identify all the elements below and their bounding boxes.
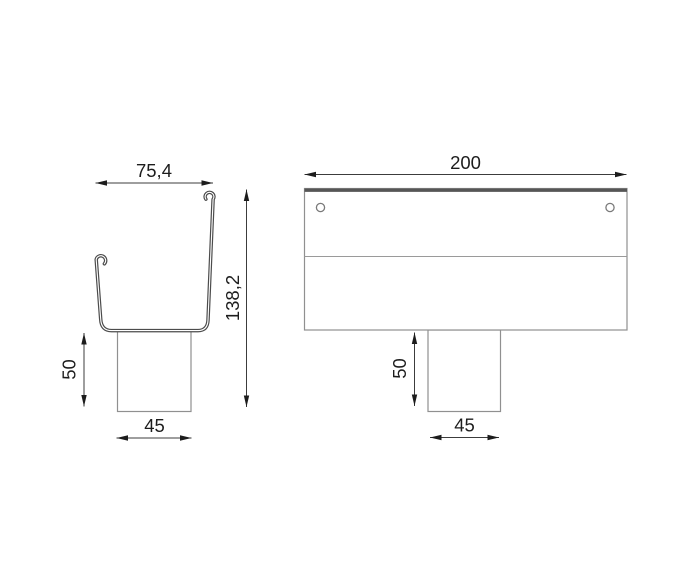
dim-side-top-width: 75,4 [96, 160, 214, 186]
outlet-pipe-front [428, 330, 501, 412]
dim-arrow-left-icon [96, 180, 108, 185]
technical-drawing: 75,4 138,2 50 45 [0, 0, 700, 572]
dim-arrow-down-icon [244, 396, 249, 408]
gutter-profile-outline [96, 192, 214, 330]
dim-arrow-left-icon [305, 172, 317, 177]
dim-arrow-down-icon [412, 395, 417, 407]
dim-side-outlet-width: 45 [117, 415, 192, 441]
dim-front-outlet-width: 45 [430, 415, 499, 441]
dim-arrow-up-icon [81, 333, 86, 345]
dim-label: 45 [454, 415, 475, 436]
dim-arrow-down-icon [81, 395, 86, 407]
mounting-hole-right [606, 203, 614, 211]
dim-arrow-right-icon [488, 435, 500, 440]
drawing-page: 75,4 138,2 50 45 [0, 0, 700, 572]
dim-arrow-up-icon [244, 190, 249, 202]
mounting-hole-left [316, 203, 324, 211]
gutter-profile-core [96, 192, 214, 330]
back-panel [305, 189, 628, 331]
dim-arrow-up-icon [412, 333, 417, 345]
dim-label: 45 [144, 415, 165, 436]
dim-label: 138,2 [222, 275, 243, 321]
dim-front-width: 200 [305, 152, 627, 177]
dim-label: 50 [389, 358, 410, 379]
dim-arrow-right-icon [180, 435, 192, 440]
side-profile-view: 75,4 138,2 50 45 [59, 160, 250, 441]
dim-front-outlet-height: 50 [389, 333, 417, 407]
dim-label: 50 [59, 359, 80, 380]
dim-arrow-right-icon [202, 180, 214, 185]
dim-arrow-right-icon [615, 172, 627, 177]
front-view: 200 50 45 [305, 152, 628, 440]
dim-side-outlet-height: 50 [59, 333, 87, 407]
outlet-pipe-side [118, 331, 192, 412]
dim-arrow-left-icon [117, 435, 129, 440]
dim-arrow-left-icon [430, 435, 442, 440]
dim-label: 200 [450, 152, 481, 173]
dim-label: 75,4 [136, 160, 172, 181]
dim-side-total-height: 138,2 [222, 190, 249, 408]
